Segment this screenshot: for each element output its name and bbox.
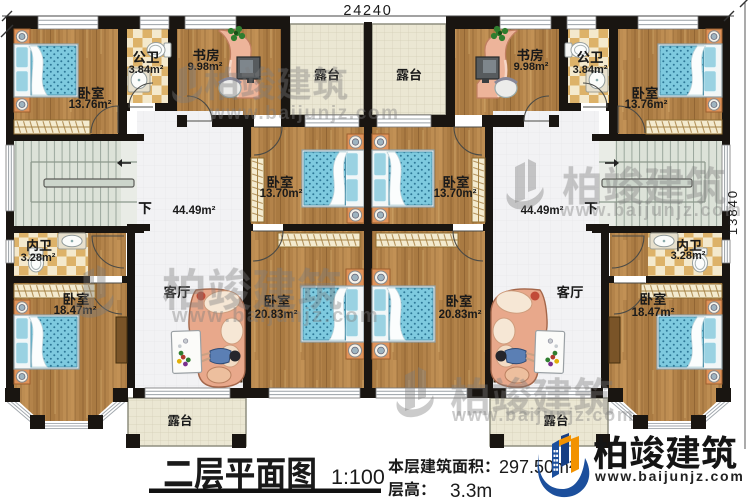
svg-text:3.84m²: 3.84m² [129, 64, 164, 76]
svg-text:13.70m²: 13.70m² [260, 188, 303, 200]
svg-text:www.baijunjz.com: www.baijunjz.com [451, 405, 635, 425]
svg-text:3.84m²: 3.84m² [573, 64, 608, 76]
svg-text:44.49m²: 44.49m² [173, 205, 216, 217]
svg-text:3.28m²: 3.28m² [21, 252, 56, 264]
svg-text:3.28m²: 3.28m² [671, 250, 706, 262]
svg-text:3.3m: 3.3m [450, 481, 492, 501]
svg-text:www.baijunjz.com: www.baijunjz.com [594, 468, 745, 484]
svg-text:1:100: 1:100 [331, 465, 385, 489]
svg-text:www.baijunjz.com: www.baijunjz.com [209, 103, 400, 124]
svg-text:13.76m²: 13.76m² [625, 99, 668, 111]
svg-text:20.83m²: 20.83m² [439, 309, 482, 321]
svg-text:13.76m²: 13.76m² [69, 99, 112, 111]
svg-text:13840: 13840 [725, 189, 740, 235]
svg-text:24240: 24240 [343, 3, 392, 19]
svg-text:18.47m²: 18.47m² [632, 307, 675, 319]
svg-text:9.98m²: 9.98m² [514, 61, 549, 73]
svg-text:13.70m²: 13.70m² [434, 188, 477, 200]
svg-text:www.baijunjz.com: www.baijunjz.com [171, 305, 380, 327]
svg-text:www.baijunjz.com: www.baijunjz.com [559, 200, 743, 220]
